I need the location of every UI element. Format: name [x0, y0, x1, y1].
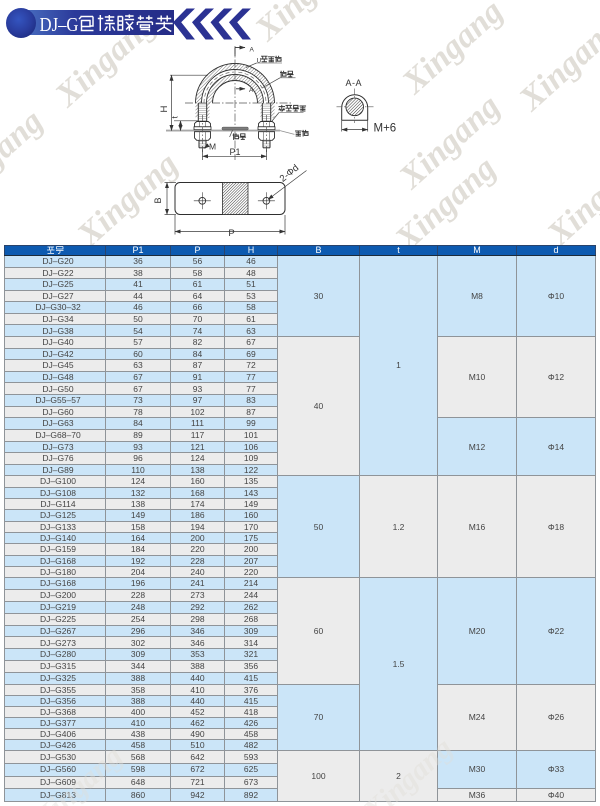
svg-text:Xingang: Xingang	[357, 731, 459, 806]
svg-text:Xingang: Xingang	[27, 739, 129, 806]
